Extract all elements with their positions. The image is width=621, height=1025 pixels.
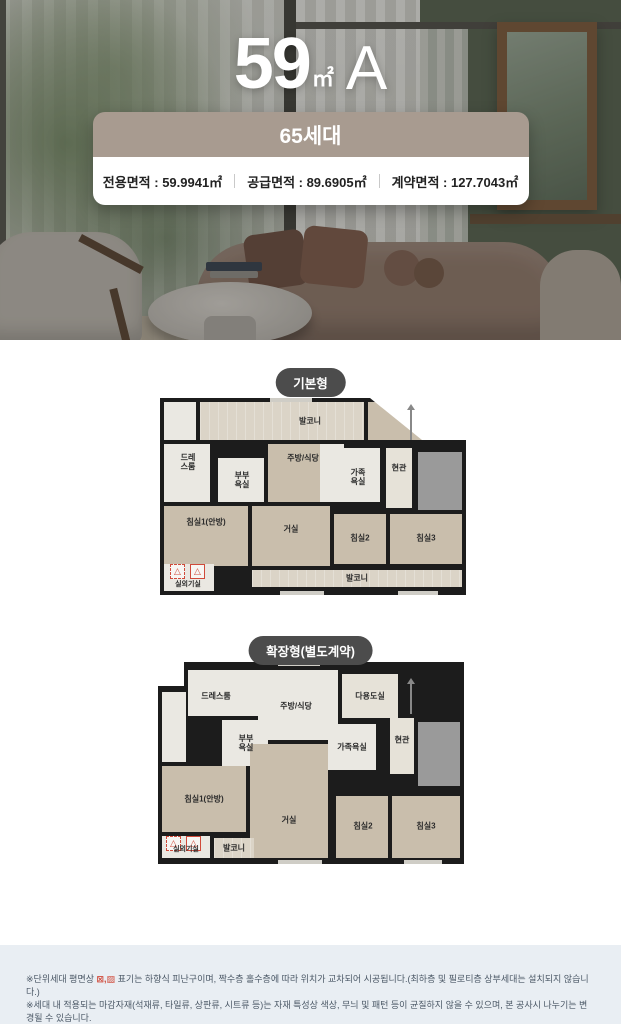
room-bed1 <box>164 506 248 566</box>
window-mark <box>398 591 438 595</box>
label-bed1: 침실1(안방) <box>186 517 225 526</box>
label-balcony-bottom: 발코니 <box>346 573 368 582</box>
escape-hatch-legend-symbols: ⊠,▨ <box>97 974 116 984</box>
disclaimer-1-prefix: ※단위세대 평면상 <box>26 974 97 984</box>
label-bed3: 침실3 <box>416 821 435 830</box>
floorplan-basic: △ △ 발코니 드레스룸 부부욕실 주방/식당 가족욕실 현관 침실1(안방) … <box>160 398 466 595</box>
disclaimer-line-2: ※세대 내 적용되는 마감자재(석재류, 타일류, 상판류, 시트류 등)는 자… <box>26 999 595 1025</box>
label-family-bath: 가족욕실 <box>337 742 366 751</box>
spec-divider <box>234 174 235 188</box>
plan-outline-cut <box>158 662 184 686</box>
label-outdoor-unit: 실외기실 <box>175 581 201 589</box>
unit-size-unit: ㎡ <box>312 61 334 93</box>
plan-tag-basic: 기본형 <box>275 368 346 397</box>
unit-type-letter: A <box>346 38 387 100</box>
entrance-arrow-head <box>407 404 415 410</box>
entrance-arrow <box>410 410 412 440</box>
plan-tag-extended: 확장형(별도계약) <box>248 636 373 665</box>
escape-hatch-icon: △ <box>170 564 185 579</box>
room-shaft <box>418 722 460 786</box>
label-bed2: 침실2 <box>350 533 369 542</box>
floorplan-extended: △ △ 드레스룸 주방/식당 다용도실 부부욕실 가족욕실 현관 침실1(안방)… <box>158 662 464 864</box>
escape-hatch-icon: △ <box>190 564 205 579</box>
household-count-badge: 65세대 <box>93 112 529 157</box>
label-kitchen: 주방/식당 <box>280 701 312 710</box>
room-closet <box>164 402 196 440</box>
unit-size: 59 <box>234 28 310 100</box>
label-entrance: 현관 <box>395 735 410 744</box>
spec-divider <box>379 174 380 188</box>
label-utility: 다용도실 <box>355 691 384 700</box>
room-living <box>252 506 330 566</box>
room-entrance <box>386 448 412 508</box>
window-mark <box>270 398 312 402</box>
label-kitchen: 주방/식당 <box>287 453 319 462</box>
label-dress: 드레스룸 <box>201 691 230 700</box>
window-mark <box>404 860 442 864</box>
label-master-bath: 부부욕실 <box>236 734 256 752</box>
spec-exclusive-area: 전용면적 : 59.9941㎡ <box>103 172 222 191</box>
label-balcony-top: 발코니 <box>299 416 321 425</box>
label-living: 거실 <box>282 815 297 824</box>
room-balcony-top <box>200 402 364 440</box>
area-specs-row: 전용면적 : 59.9941㎡ 공급면적 : 89.6905㎡ 계약면적 : 1… <box>93 157 529 205</box>
escape-hatch-glyph: △ <box>174 567 181 576</box>
unit-type-title: 59 ㎡ A <box>0 28 621 100</box>
unit-info-card: 65세대 전용면적 : 59.9941㎡ 공급면적 : 89.6905㎡ 계약면… <box>93 112 529 205</box>
spec-contract-area: 계약면적 : 127.7043㎡ <box>392 172 519 191</box>
window-mark <box>278 860 322 864</box>
disclaimer-footer: ※단위세대 평면상 ⊠,▨ 표기는 하향식 피난구이며, 짝수층 홀수층에 따라… <box>0 945 621 1024</box>
entrance-arrow-head <box>407 678 415 684</box>
label-balcony: 발코니 <box>223 843 245 852</box>
room-shaft <box>418 452 462 510</box>
label-bed3: 침실3 <box>416 533 435 542</box>
label-entrance: 현관 <box>392 463 407 472</box>
room-closet <box>162 692 186 762</box>
label-family-bath: 가족욕실 <box>348 468 368 486</box>
escape-hatch-glyph: △ <box>194 567 201 576</box>
room-entrance <box>390 718 414 774</box>
room-living <box>250 744 328 858</box>
label-bed1: 침실1(안방) <box>184 794 223 803</box>
label-dress: 드레스룸 <box>178 453 198 471</box>
label-master-bath: 부부욕실 <box>232 471 252 489</box>
label-outdoor-unit: 실외기실 <box>173 846 199 854</box>
entrance-arrow <box>410 684 412 714</box>
label-bed2: 침실2 <box>353 821 372 830</box>
spec-supply-area: 공급면적 : 89.6905㎡ <box>247 172 366 191</box>
window-mark <box>280 591 324 595</box>
hero-photo: 59 ㎡ A 65세대 전용면적 : 59.9941㎡ 공급면적 : 89.69… <box>0 0 621 340</box>
disclaimer-line-1: ※단위세대 평면상 ⊠,▨ 표기는 하향식 피난구이며, 짝수층 홀수층에 따라… <box>26 973 595 999</box>
label-living: 거실 <box>284 524 299 533</box>
